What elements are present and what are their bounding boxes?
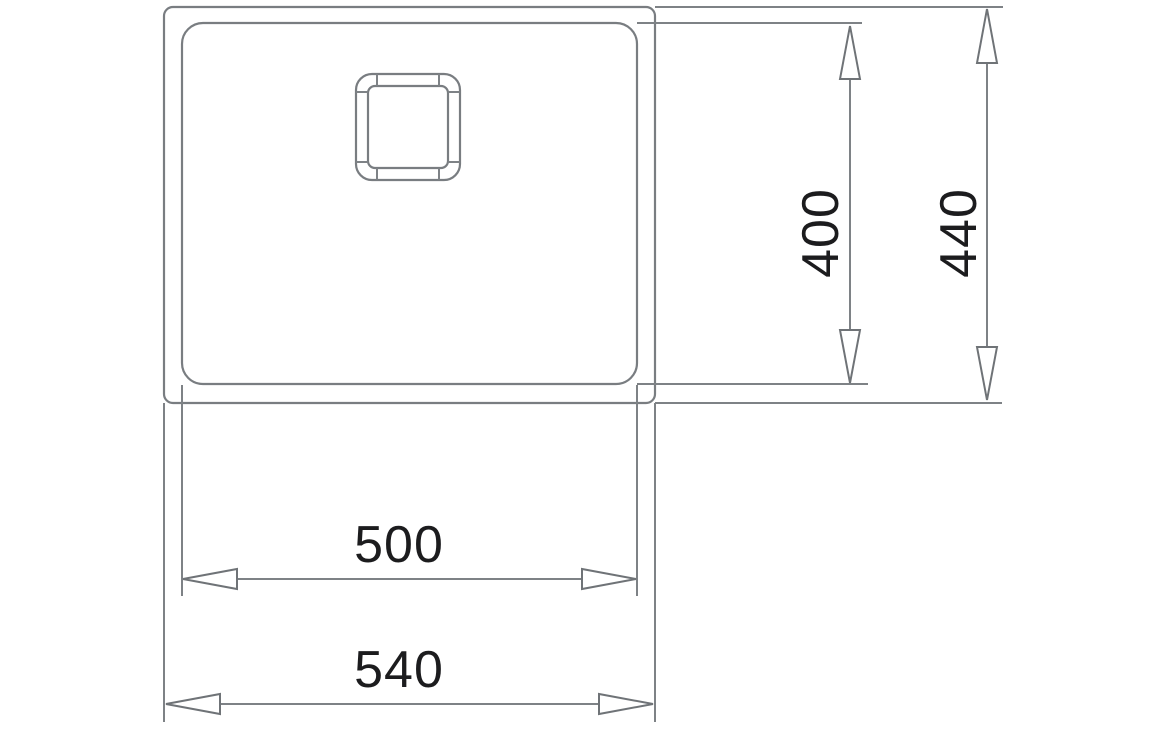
drawing-canvas: 500 540 400 440 (0, 0, 1156, 742)
arrowhead-540-left (166, 694, 220, 714)
sink-outer-outline (164, 7, 655, 403)
drain-outer-outline (356, 74, 460, 180)
arrowhead-500-right (582, 569, 636, 589)
dimension-label-inner-width: 500 (354, 516, 444, 574)
drain-corner-ticks (356, 74, 460, 180)
sink-dimension-drawing: 500 540 400 440 (0, 0, 1156, 742)
arrowhead-500-left (183, 569, 237, 589)
arrowhead-440-top (977, 9, 997, 63)
sink-bowl-outline (182, 23, 637, 384)
dimension-label-outer-width: 540 (354, 641, 444, 699)
arrowhead-440-bottom (977, 347, 997, 400)
drain-inner-outline (368, 86, 448, 168)
arrowhead-400-bottom (840, 330, 860, 383)
arrowhead-400-top (840, 26, 860, 79)
dimension-label-inner-height: 400 (792, 188, 850, 278)
dimension-label-outer-height: 440 (930, 188, 988, 278)
arrowhead-540-right (599, 694, 653, 714)
